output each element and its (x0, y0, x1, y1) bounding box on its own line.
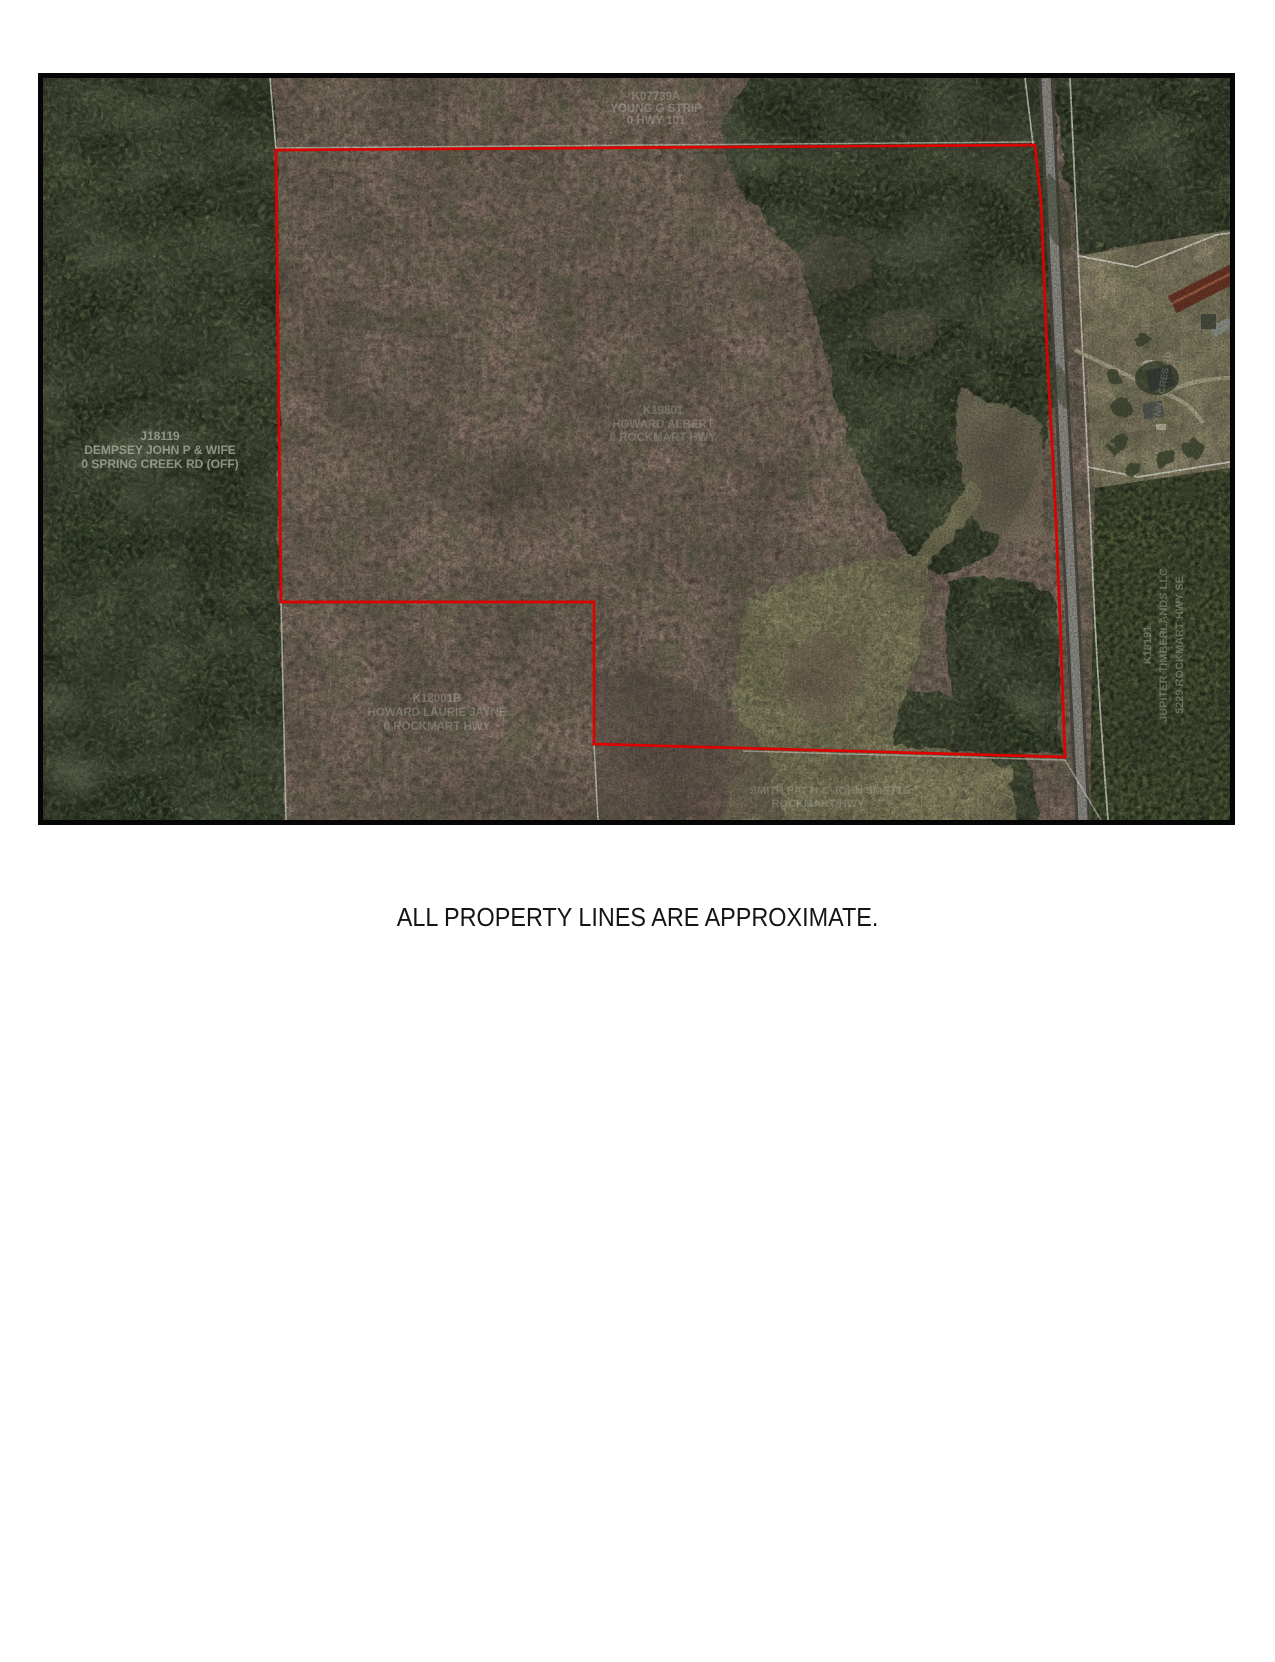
svg-text:YOUNG G STRIP: YOUNG G STRIP (610, 103, 702, 115)
svg-text:K18191: K18191 (1142, 626, 1154, 665)
svg-text:K19801: K19801 (643, 405, 684, 417)
svg-text:DEMPSEY JOHN P & WIFE: DEMPSEY JOHN P & WIFE (84, 443, 236, 457)
svg-text:J18119: J18119 (140, 429, 180, 443)
svg-text:K18001B: K18001B (413, 693, 462, 705)
svg-text:0 ROCKMART HWY: 0 ROCKMART HWY (384, 721, 491, 733)
svg-text:0 HWY 101: 0 HWY 101 (627, 115, 686, 127)
svg-text:JUPITER TIMBERLANDS LLC: JUPITER TIMBERLANDS LLC (1158, 568, 1170, 722)
svg-text:0 ROCKMART HWY: 0 ROCKMART HWY (610, 432, 717, 444)
svg-text:HOWARD ALBERT: HOWARD ALBERT (612, 419, 714, 431)
svg-text:K07739A: K07739A (632, 91, 681, 103)
svg-text:HOWARD LAURIE JAYNE: HOWARD LAURIE JAYNE (368, 707, 507, 719)
svg-text:0 SPRING CREEK RD (OFF): 0 SPRING CREEK RD (OFF) (81, 457, 238, 471)
svg-text:5229 ROCKMART HWY SE: 5229 ROCKMART HWY SE (1174, 576, 1186, 714)
svg-text:ROCKMART HWY: ROCKMART HWY (772, 798, 866, 810)
svg-text:SMITH PAT H & JOHN SMETTS: SMITH PAT H & JOHN SMETTS (750, 785, 911, 797)
